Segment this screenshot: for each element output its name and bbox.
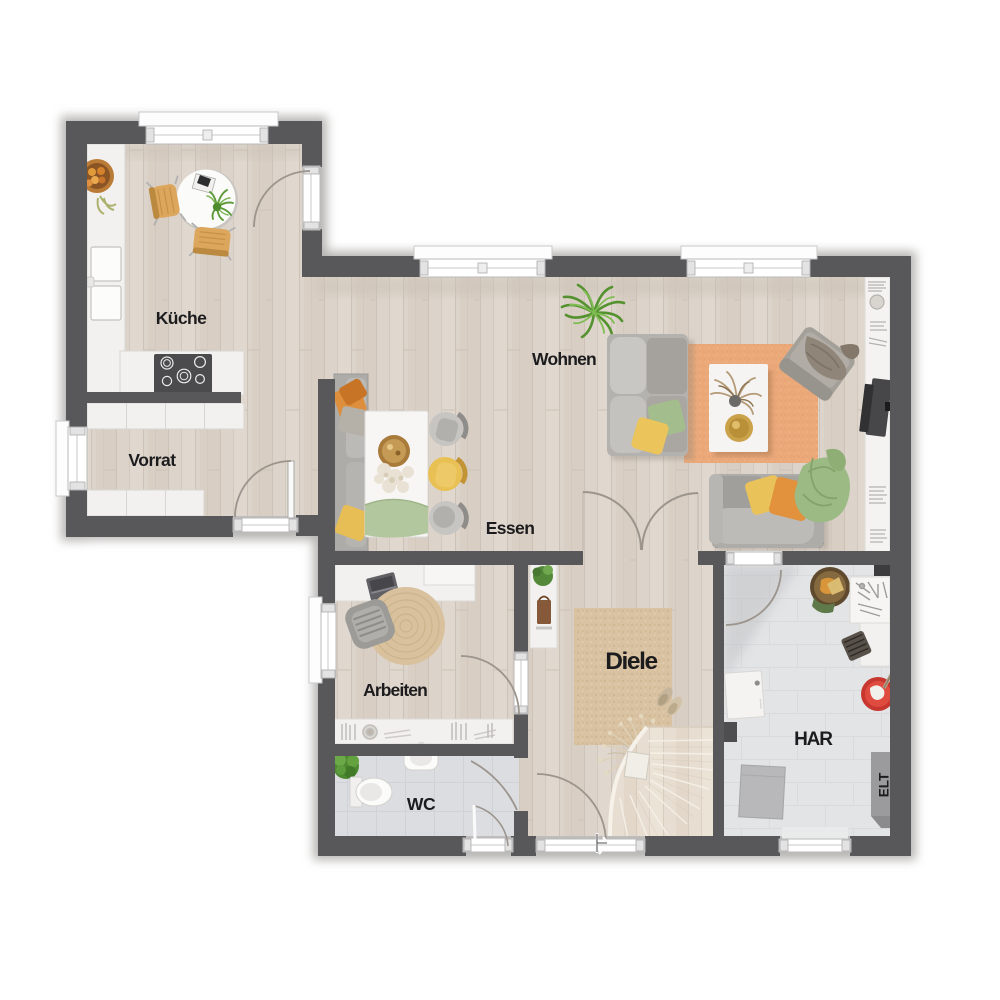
svg-text:Wohnen: Wohnen [532,349,596,369]
svg-text:Vorrat: Vorrat [128,450,176,470]
svg-text:Küche: Küche [156,308,207,328]
svg-text:Diele: Diele [605,648,657,675]
svg-text:ELT: ELT [877,772,892,797]
svg-text:WC: WC [407,794,436,814]
svg-text:Essen: Essen [486,518,535,538]
svg-text:Arbeiten: Arbeiten [363,680,427,700]
svg-text:HAR: HAR [794,729,833,750]
